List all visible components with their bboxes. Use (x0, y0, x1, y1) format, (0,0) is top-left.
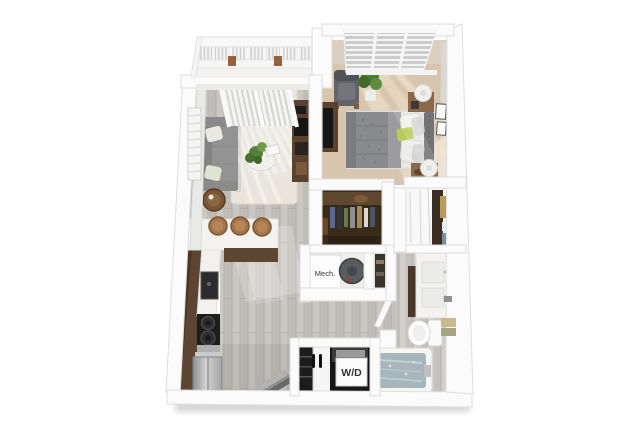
svg-text:W/D: W/D (341, 367, 362, 379)
svg-text:Mech.: Mech. (315, 269, 335, 278)
